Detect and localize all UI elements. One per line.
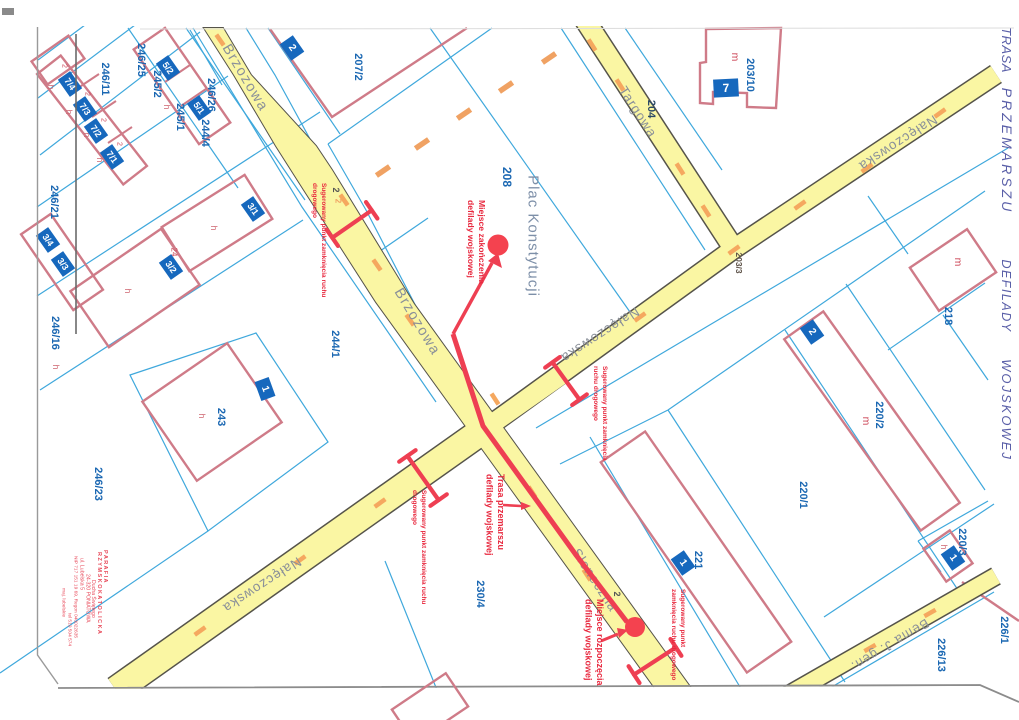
svg-text:2: 2 [612,591,622,596]
svg-text:246/11: 246/11 [99,62,111,95]
svg-text:246/21: 246/21 [48,185,60,219]
svg-text:h: h [939,544,949,549]
svg-text:PRZEMARSZU: PRZEMARSZU [999,88,1015,214]
svg-text:204: 204 [645,100,657,119]
svg-text:h: h [209,225,219,230]
svg-text:226/13: 226/13 [935,638,947,672]
svg-text:203/3: 203/3 [734,252,744,274]
svg-text:WOJSKOWEJ: WOJSKOWEJ [999,359,1014,461]
svg-text:246/16: 246/16 [49,316,61,350]
svg-text:h: h [46,84,56,89]
svg-text:2: 2 [116,142,123,146]
svg-text:2: 2 [100,118,107,122]
svg-text:230/4: 230/4 [474,580,486,608]
svg-text:h: h [123,288,133,293]
svg-text:2: 2 [61,64,68,68]
svg-text:tel 510 504 574: tel 510 504 574 [67,613,73,646]
svg-text:2: 2 [331,187,341,192]
svg-text:245/1: 245/1 [174,103,186,131]
svg-text:m: m [952,258,964,267]
svg-text:h: h [51,364,61,369]
svg-text:m: m [729,53,741,62]
svg-text:TRASA: TRASA [999,27,1014,73]
svg-text:245/2: 245/2 [151,70,163,98]
svg-text:DEFILADY: DEFILADY [999,259,1013,332]
svg-text:h: h [95,157,105,162]
svg-text:NIP 717 151 19 69, Regon 04002: NIP 717 151 19 69, Regon 040022635 [73,556,79,638]
svg-text:208: 208 [500,167,514,187]
svg-text:220/1: 220/1 [797,481,809,509]
svg-text:m: m [860,417,872,426]
svg-text:maj. lubelskie: maj. lubelskie [61,588,67,617]
svg-text:218: 218 [942,307,954,325]
svg-text:2: 2 [84,92,91,96]
svg-text:207/2: 207/2 [352,53,364,81]
svg-text:244/4: 244/4 [199,119,211,147]
svg-text:244/1: 244/1 [329,330,341,358]
svg-text:Miejsce rozpoczęciadefilady wo: Miejsce rozpoczęciadefilady wojskowej [584,599,606,687]
svg-text:Ducha Świętego: Ducha Świętego [90,580,98,618]
svg-text:Miejsce zakończeniadefilady wo: Miejsce zakończeniadefilady wojskowej [466,200,487,284]
svg-text:246/23: 246/23 [92,467,104,501]
svg-text:h: h [162,104,172,109]
svg-text:h: h [197,413,207,418]
svg-text:h: h [64,109,74,114]
svg-text:ul. Lubelska 5: ul. Lubelska 5 [78,558,84,590]
svg-text:226/1: 226/1 [998,616,1010,644]
svg-text:Trasa przemarszudefilady wojsk: Trasa przemarszudefilady wojskowej [485,474,507,556]
svg-text:2: 2 [334,199,343,204]
svg-text:203/10: 203/10 [744,58,756,92]
svg-text:7: 7 [722,81,730,95]
svg-text:246/25: 246/25 [135,43,147,77]
svg-text:220/2: 220/2 [873,401,885,429]
svg-text:Plac Konstytucji: Plac Konstytucji [525,175,542,297]
svg-text:243: 243 [215,408,227,426]
